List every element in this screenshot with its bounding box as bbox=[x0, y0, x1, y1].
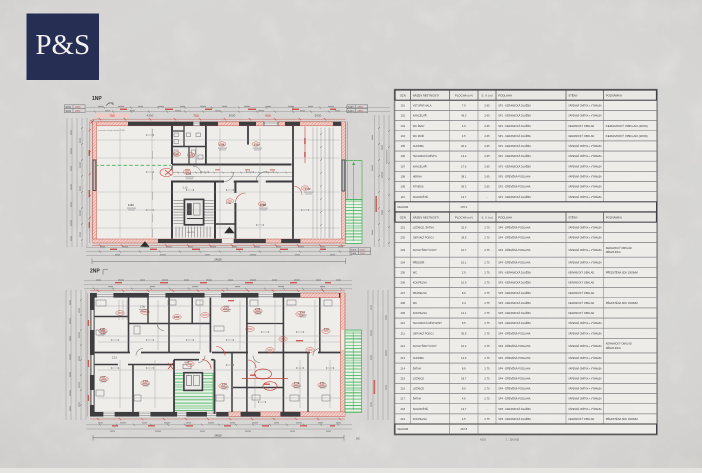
svg-text:2NP: 2NP bbox=[90, 268, 100, 274]
svg-text:209: 209 bbox=[401, 311, 406, 315]
svg-text:28.5: 28.5 bbox=[461, 236, 467, 240]
svg-text:8.9: 8.9 bbox=[462, 366, 466, 370]
svg-text:S. V. (m): S. V. (m) bbox=[481, 93, 492, 97]
svg-text:VSTUPNÍ HALA: VSTUPNÍ HALA bbox=[413, 103, 432, 107]
svg-text:-: - bbox=[487, 196, 488, 199]
svg-text:VÁPENNÁ OMÍTKA + VÝMALBA: VÁPENNÁ OMÍTKA + VÝMALBA bbox=[568, 103, 602, 107]
svg-text:2.65: 2.65 bbox=[484, 185, 490, 189]
svg-text:PLOCHA (m²): PLOCHA (m²) bbox=[455, 93, 473, 97]
svg-text:8.9: 8.9 bbox=[462, 291, 466, 295]
svg-text:TECHNICKÁ MÍSTN.: TECHNICKÁ MÍSTN. bbox=[413, 154, 438, 158]
svg-text:KOUPELNA: KOUPELNA bbox=[413, 281, 427, 285]
svg-text:VÁPENNÁ OMÍTKA + VÝMALBA: VÁPENNÁ OMÍTKA + VÝMALBA bbox=[568, 114, 602, 118]
svg-text:KERAMICKÝ OBKLAD (2000): KERAMICKÝ OBKLAD (2000) bbox=[606, 124, 648, 128]
svg-text:KOUPELNA: KOUPELNA bbox=[413, 417, 427, 421]
svg-text:208: 208 bbox=[401, 301, 406, 305]
svg-text:202: 202 bbox=[401, 236, 406, 240]
svg-text:2.65: 2.65 bbox=[484, 124, 490, 128]
svg-text:18.7: 18.7 bbox=[461, 376, 467, 380]
svg-text:214: 214 bbox=[401, 366, 406, 370]
svg-text:750: 750 bbox=[193, 114, 199, 118]
svg-text:VÁPENNÁ OMÍTKA + VÝMALBA: VÁPENNÁ OMÍTKA + VÝMALBA bbox=[568, 144, 602, 148]
svg-text:TECHNICKÁ MÍSTNOST: TECHNICKÁ MÍSTNOST bbox=[413, 321, 443, 325]
svg-text:32.6: 32.6 bbox=[461, 225, 467, 229]
svg-text:2.75: 2.75 bbox=[484, 344, 490, 348]
svg-text:101: 101 bbox=[401, 103, 406, 107]
svg-text:1 : 100 (A3): 1 : 100 (A3) bbox=[506, 438, 519, 441]
svg-text:10.7: 10.7 bbox=[461, 248, 467, 252]
svg-text:WC: WC bbox=[413, 301, 417, 305]
svg-text:VÁPENNÁ OMÍTKA + VÝMALBA: VÁPENNÁ OMÍTKA + VÝMALBA bbox=[568, 248, 602, 252]
svg-text:204: 204 bbox=[401, 260, 406, 264]
svg-text:3500: 3500 bbox=[229, 114, 236, 118]
svg-text:211: 211 bbox=[401, 331, 406, 335]
svg-text:1NP: 1NP bbox=[92, 96, 102, 102]
svg-text:105: 105 bbox=[401, 144, 406, 148]
svg-text:203: 203 bbox=[401, 248, 406, 252]
svg-text:S. V. (m): S. V. (m) bbox=[481, 215, 492, 219]
svg-text:2.75: 2.75 bbox=[484, 397, 490, 401]
svg-text:2.75: 2.75 bbox=[484, 270, 490, 274]
svg-text:219: 219 bbox=[401, 417, 406, 421]
svg-text:CELKEM: CELKEM bbox=[397, 205, 409, 209]
svg-text:20.2: 20.2 bbox=[461, 144, 467, 148]
svg-text:P&S: P&S bbox=[35, 29, 90, 61]
svg-text:2.9: 2.9 bbox=[462, 270, 466, 274]
svg-text:2.75: 2.75 bbox=[484, 291, 490, 295]
svg-text:201: 201 bbox=[401, 225, 406, 229]
svg-text:KOUPELNA: KOUPELNA bbox=[413, 311, 427, 315]
svg-text:KERAMICKÝ OBKLAD: KERAMICKÝ OBKLAD bbox=[568, 417, 594, 421]
svg-text:VÁPENNÁ OMÍTKA + VÝMALBA: VÁPENNÁ OMÍTKA + VÝMALBA bbox=[568, 376, 602, 380]
svg-text:36.3: 36.3 bbox=[461, 185, 467, 189]
svg-text:-: - bbox=[487, 408, 488, 411]
svg-text:1.01: 1.01 bbox=[128, 203, 134, 207]
svg-text:12.3: 12.3 bbox=[461, 356, 467, 360]
svg-text:VÁPENNÁ OMÍTKA + VÝMALBA: VÁPENNÁ OMÍTKA + VÝMALBA bbox=[568, 195, 602, 199]
svg-text:S102: S102 bbox=[66, 110, 72, 113]
svg-text:VÁPENNÁ OMÍTKA + VÝMALBA: VÁPENNÁ OMÍTKA + VÝMALBA bbox=[568, 321, 602, 325]
svg-text:VÁPENNÁ OMÍTKA + VÝMALBA: VÁPENNÁ OMÍTKA + VÝMALBA bbox=[568, 175, 602, 179]
svg-text:10.9: 10.9 bbox=[461, 281, 467, 285]
svg-text:2650: 2650 bbox=[75, 110, 81, 113]
svg-text:10.1: 10.1 bbox=[461, 260, 467, 264]
svg-text:FITNESS: FITNESS bbox=[413, 185, 424, 189]
svg-text:104: 104 bbox=[401, 134, 406, 138]
svg-text:VÁPENNÁ OMÍTKA + VÝMALBA: VÁPENNÁ OMÍTKA + VÝMALBA bbox=[568, 356, 602, 360]
svg-text:2.75: 2.75 bbox=[484, 356, 490, 360]
svg-text:218: 218 bbox=[401, 407, 406, 411]
svg-text:OBÝVACÍ POKOJ: OBÝVACÍ POKOJ bbox=[413, 236, 435, 240]
svg-text:205: 205 bbox=[401, 270, 406, 274]
svg-text:KERAMICKÝ OBKLAD: KERAMICKÝ OBKLAD bbox=[568, 291, 594, 295]
svg-text:4.5: 4.5 bbox=[462, 417, 466, 421]
svg-text:8.9: 8.9 bbox=[462, 387, 466, 391]
svg-text:WC: WC bbox=[413, 270, 417, 274]
svg-text:206: 206 bbox=[401, 281, 406, 285]
svg-text:POZNÁMKA: POZNÁMKA bbox=[606, 93, 622, 97]
svg-text:STĚNY: STĚNY bbox=[568, 214, 578, 219]
svg-text:2.65: 2.65 bbox=[484, 154, 490, 158]
svg-text:107: 107 bbox=[401, 164, 406, 168]
svg-text:2.75: 2.75 bbox=[484, 236, 490, 240]
svg-text:106: 106 bbox=[401, 154, 406, 158]
svg-text:13.2: 13.2 bbox=[461, 154, 467, 158]
svg-text:212: 212 bbox=[401, 344, 406, 348]
svg-text:KERAMICKÝ OBKLAD: KERAMICKÝ OBKLAD bbox=[568, 311, 594, 315]
svg-text:103: 103 bbox=[401, 124, 406, 128]
svg-text:KERAMICKÝ OBKLAD: KERAMICKÝ OBKLAD bbox=[568, 124, 594, 128]
svg-text:178.1: 178.1 bbox=[460, 205, 467, 209]
svg-text:4.9: 4.9 bbox=[462, 124, 466, 128]
svg-text:38.1: 38.1 bbox=[461, 175, 467, 179]
svg-text:2.65: 2.65 bbox=[484, 164, 490, 168]
svg-text:5650: 5650 bbox=[315, 114, 322, 118]
svg-text:A101: A101 bbox=[480, 438, 486, 441]
svg-text:2.75: 2.75 bbox=[484, 376, 490, 380]
svg-text:216: 216 bbox=[401, 387, 406, 391]
svg-text:PLOCHA (m²): PLOCHA (m²) bbox=[455, 215, 473, 219]
svg-text:VÁPENNÁ OMÍTKA + VÝMALBA: VÁPENNÁ OMÍTKA + VÝMALBA bbox=[568, 344, 602, 348]
svg-text:3.4: 3.4 bbox=[462, 301, 466, 305]
svg-text:KERAMICKÝ OBKLAD: KERAMICKÝ OBKLAD bbox=[568, 281, 594, 285]
svg-text:OBÝVACÍ POKOJ: OBÝVACÍ POKOJ bbox=[413, 331, 435, 335]
svg-text:13.7: 13.7 bbox=[461, 195, 467, 199]
svg-text:VÁPENNÁ OMÍTKA + VÝMALBA: VÁPENNÁ OMÍTKA + VÝMALBA bbox=[568, 366, 602, 370]
svg-text:2.65: 2.65 bbox=[484, 114, 490, 118]
svg-text:217: 217 bbox=[401, 397, 406, 401]
svg-text:110: 110 bbox=[401, 195, 406, 199]
svg-text:2.75: 2.75 bbox=[484, 331, 490, 335]
svg-text:OZN: OZN bbox=[400, 93, 406, 97]
svg-text:KERAMICKÝ OBKLAD: KERAMICKÝ OBKLAD bbox=[606, 342, 632, 346]
svg-text:VÁPENNÁ OMÍTKA + VÝMALBA: VÁPENNÁ OMÍTKA + VÝMALBA bbox=[568, 225, 602, 229]
svg-text:4.6: 4.6 bbox=[462, 397, 466, 401]
svg-text:13.7: 13.7 bbox=[461, 407, 467, 411]
svg-text:POZNÁMKA: POZNÁMKA bbox=[606, 215, 622, 219]
svg-text:207: 207 bbox=[401, 291, 406, 295]
svg-text:2.65: 2.65 bbox=[484, 103, 490, 107]
svg-text:CHODBA: CHODBA bbox=[413, 356, 424, 360]
svg-text:PODLAHA: PODLAHA bbox=[498, 215, 512, 219]
svg-text:CELKEM: CELKEM bbox=[397, 427, 409, 431]
svg-text:24500: 24500 bbox=[214, 434, 222, 438]
svg-text:2.75: 2.75 bbox=[484, 321, 490, 325]
svg-text:49.3: 49.3 bbox=[461, 114, 467, 118]
svg-text:2650: 2650 bbox=[75, 106, 81, 109]
svg-text:KERAMICKÝ OBKLAD: KERAMICKÝ OBKLAD bbox=[606, 246, 632, 250]
svg-text:2.65: 2.65 bbox=[484, 134, 490, 138]
svg-text:2.75: 2.75 bbox=[484, 301, 490, 305]
svg-text:4.5: 4.5 bbox=[462, 134, 466, 138]
svg-text:2.75: 2.75 bbox=[484, 311, 490, 315]
svg-text:8.5: 8.5 bbox=[462, 321, 466, 325]
svg-text:17.6: 17.6 bbox=[461, 164, 467, 168]
svg-text:2.75: 2.75 bbox=[484, 387, 490, 391]
svg-text:12.1: 12.1 bbox=[461, 311, 467, 315]
svg-text:2.75: 2.75 bbox=[484, 260, 490, 264]
svg-text:267.8: 267.8 bbox=[460, 427, 467, 431]
svg-text:OZN: OZN bbox=[400, 215, 406, 219]
svg-text:NÁZEV MÍSTNOSTI: NÁZEV MÍSTNOSTI bbox=[413, 215, 439, 219]
svg-text:7.9: 7.9 bbox=[462, 103, 466, 107]
svg-text:VÁPENNÁ OMÍTKA + VÝMALBA: VÁPENNÁ OMÍTKA + VÝMALBA bbox=[568, 154, 602, 158]
svg-text:NÁZEV MÍSTNOSTI: NÁZEV MÍSTNOSTI bbox=[413, 93, 439, 97]
svg-text:PODLAHA: PODLAHA bbox=[498, 93, 512, 97]
svg-text:KERAMICKÝ OBKLAD (2000): KERAMICKÝ OBKLAD (2000) bbox=[606, 134, 648, 138]
svg-text:102: 102 bbox=[401, 114, 406, 118]
svg-text:10.2: 10.2 bbox=[461, 344, 467, 348]
svg-text:213: 213 bbox=[401, 356, 406, 360]
svg-text:osazení vstupní dveře ČSN: osazení vstupní dveře ČSN bbox=[98, 129, 125, 132]
svg-text:VÁPENNÁ OMÍTKA + VÝMALBA: VÁPENNÁ OMÍTKA + VÝMALBA bbox=[568, 387, 602, 391]
svg-text:1.10: 1.10 bbox=[183, 187, 188, 190]
svg-text:S105: S105 bbox=[351, 250, 357, 252]
svg-text:HERNA: HERNA bbox=[413, 175, 422, 179]
svg-text:S106: S106 bbox=[351, 253, 357, 255]
svg-text:2.75: 2.75 bbox=[484, 248, 490, 252]
svg-text:VÁPENNÁ OMÍTKA + VÝMALBA: VÁPENNÁ OMÍTKA + VÝMALBA bbox=[568, 260, 602, 264]
svg-text:KERAMICKÝ OBKLAD: KERAMICKÝ OBKLAD bbox=[568, 134, 594, 138]
svg-text:PRÁDELNA: PRÁDELNA bbox=[413, 291, 427, 295]
svg-text:108: 108 bbox=[401, 175, 406, 179]
svg-text:4250: 4250 bbox=[147, 114, 154, 118]
svg-text:30.5: 30.5 bbox=[461, 331, 467, 335]
svg-text:VÁPENNÁ OMÍTKA + VÝMALBA: VÁPENNÁ OMÍTKA + VÝMALBA bbox=[568, 164, 602, 168]
svg-text:2.65: 2.65 bbox=[484, 175, 490, 179]
svg-text:750: 750 bbox=[109, 114, 115, 118]
svg-text:2650: 2650 bbox=[360, 250, 366, 252]
svg-text:MD.: MD. bbox=[356, 438, 361, 441]
svg-text:KERAMICKÝ OBKLAD: KERAMICKÝ OBKLAD bbox=[568, 270, 594, 274]
svg-text:2.75: 2.75 bbox=[484, 225, 490, 229]
svg-text:KERAMICKÝ OBKLAD: KERAMICKÝ OBKLAD bbox=[568, 301, 594, 305]
svg-text:STĚNY: STĚNY bbox=[568, 92, 578, 97]
svg-text:VÁPENNÁ OMÍTKA + VÝMALBA: VÁPENNÁ OMÍTKA + VÝMALBA bbox=[568, 236, 602, 240]
svg-text:900: 900 bbox=[265, 114, 271, 118]
svg-text:215: 215 bbox=[401, 376, 406, 380]
svg-text:24500: 24500 bbox=[214, 258, 222, 262]
svg-text:2.75: 2.75 bbox=[484, 366, 490, 370]
svg-text:16x175: 16x175 bbox=[187, 232, 195, 234]
svg-text:VÁPENNÁ OMÍTKA + VÝMALBA: VÁPENNÁ OMÍTKA + VÝMALBA bbox=[568, 407, 602, 411]
svg-text:VÁPENNÁ OMÍTKA + VÝMALBA: VÁPENNÁ OMÍTKA + VÝMALBA bbox=[568, 331, 602, 335]
svg-text:109: 109 bbox=[401, 185, 406, 189]
svg-text:2650: 2650 bbox=[360, 253, 366, 255]
svg-text:210: 210 bbox=[401, 321, 406, 325]
svg-text:2.75: 2.75 bbox=[484, 417, 490, 421]
svg-text:S101: S101 bbox=[66, 106, 72, 109]
svg-text:2.75: 2.75 bbox=[484, 281, 490, 285]
svg-text:CHODBA: CHODBA bbox=[413, 144, 424, 148]
svg-text:2.65: 2.65 bbox=[484, 144, 490, 148]
svg-text:VÁPENNÁ OMÍTKA + VÝMALBA: VÁPENNÁ OMÍTKA + VÝMALBA bbox=[568, 185, 602, 189]
svg-text:VÁPENNÁ OMÍTKA + VÝMALBA: VÁPENNÁ OMÍTKA + VÝMALBA bbox=[568, 397, 602, 401]
svg-text:2.13: 2.13 bbox=[112, 357, 117, 360]
